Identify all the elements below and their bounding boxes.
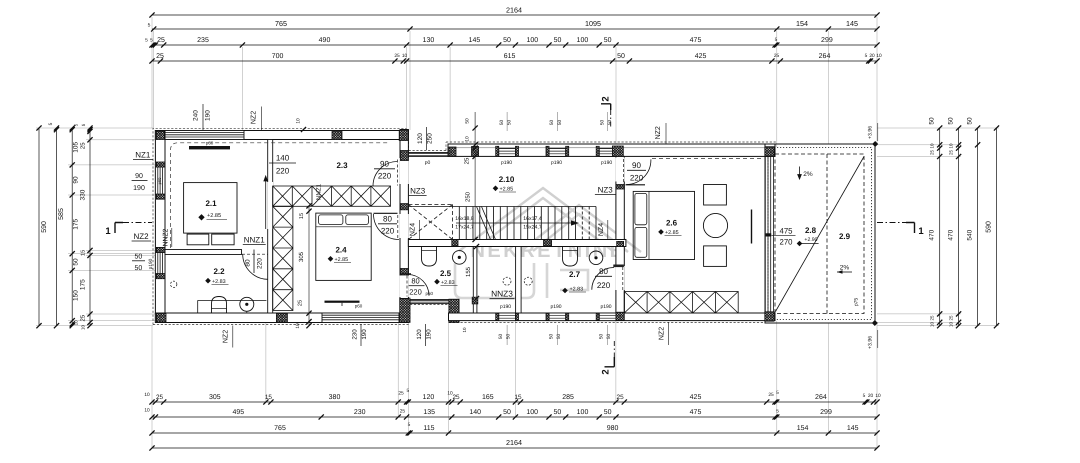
svg-text:p60: p60 (355, 304, 363, 309)
svg-text:50: 50 (604, 37, 612, 44)
svg-text:175: 175 (80, 279, 87, 290)
svg-text:50: 50 (607, 120, 613, 126)
svg-text:10: 10 (949, 143, 954, 149)
svg-text:425: 425 (690, 394, 702, 401)
svg-text:+3.96: +3.96 (868, 126, 874, 139)
svg-text:50: 50 (929, 117, 936, 125)
svg-text:299: 299 (821, 37, 833, 44)
svg-text:2.1: 2.1 (205, 199, 217, 208)
svg-text:NNZ1: NNZ1 (244, 235, 265, 244)
svg-text:220: 220 (597, 281, 611, 290)
svg-text:+2.85: +2.85 (665, 230, 679, 236)
svg-text:25: 25 (949, 315, 954, 321)
svg-text:10: 10 (949, 322, 954, 328)
svg-text:230: 230 (354, 409, 366, 416)
svg-text:90: 90 (135, 173, 143, 180)
svg-text:25: 25 (949, 150, 954, 156)
svg-text:25: 25 (298, 300, 304, 306)
svg-text:50: 50 (556, 334, 562, 340)
svg-text:475: 475 (779, 227, 793, 236)
svg-text:25: 25 (398, 391, 404, 397)
svg-text:250: 250 (427, 133, 434, 144)
svg-text:10: 10 (447, 391, 453, 397)
svg-text:50: 50 (73, 258, 80, 266)
svg-text:50: 50 (499, 120, 505, 126)
svg-text:2.8: 2.8 (805, 226, 817, 235)
svg-text:135: 135 (423, 409, 435, 416)
svg-text:50: 50 (599, 334, 605, 340)
svg-text:2.5: 2.5 (440, 269, 452, 278)
svg-text:165: 165 (482, 394, 494, 401)
svg-text:25: 25 (394, 53, 400, 59)
svg-text:NZ2: NZ2 (133, 232, 149, 241)
svg-text:140: 140 (469, 409, 481, 416)
svg-text:NZ3: NZ3 (410, 186, 426, 195)
svg-text:25: 25 (930, 150, 935, 156)
svg-text:615: 615 (504, 53, 516, 60)
svg-text:25: 25 (617, 394, 625, 401)
svg-text:5: 5 (406, 388, 409, 394)
svg-text:90: 90 (380, 160, 389, 169)
svg-text:220: 220 (630, 174, 644, 183)
svg-text:100: 100 (526, 37, 538, 44)
svg-text:120: 120 (416, 329, 423, 340)
svg-text:80: 80 (411, 277, 419, 286)
svg-text:190: 190 (133, 185, 145, 192)
svg-text:20: 20 (868, 393, 874, 399)
svg-text:10: 10 (144, 392, 150, 398)
svg-text:p190: p190 (148, 258, 154, 269)
svg-text:50: 50 (554, 409, 562, 416)
svg-text:25: 25 (156, 394, 164, 401)
svg-text:585: 585 (58, 208, 65, 220)
svg-text:25: 25 (156, 53, 164, 60)
svg-text:50: 50 (604, 409, 612, 416)
svg-text:50: 50 (503, 37, 511, 44)
svg-text:NNZ1: NNZ1 (316, 183, 323, 200)
svg-text:10: 10 (876, 53, 882, 59)
svg-text:25: 25 (930, 315, 935, 321)
svg-text:25: 25 (774, 53, 780, 59)
svg-text:2: 2 (601, 369, 612, 374)
svg-text:p190: p190 (601, 160, 612, 166)
svg-text:765: 765 (275, 19, 287, 28)
svg-text:p190: p190 (500, 304, 511, 310)
svg-text:270: 270 (779, 238, 793, 247)
svg-text:5: 5 (48, 122, 54, 125)
svg-text:155: 155 (465, 266, 472, 277)
svg-text:NNZ3: NNZ3 (491, 288, 513, 298)
svg-text:10: 10 (296, 118, 302, 124)
svg-text:5: 5 (776, 390, 779, 396)
svg-text:p75: p75 (854, 298, 860, 307)
svg-text:10: 10 (74, 320, 79, 326)
svg-text:305: 305 (298, 251, 305, 262)
svg-text:25: 25 (80, 142, 87, 149)
svg-text:25: 25 (464, 157, 471, 164)
svg-text:2%: 2% (803, 171, 813, 178)
svg-text:p60: p60 (426, 291, 434, 296)
svg-text:305: 305 (209, 394, 221, 401)
svg-text:NZ3: NZ3 (598, 185, 614, 194)
svg-text:130: 130 (423, 37, 435, 44)
svg-text:5: 5 (776, 409, 779, 415)
svg-text:p60: p60 (157, 177, 162, 184)
svg-text:2.9: 2.9 (839, 232, 851, 241)
svg-text:590: 590 (41, 221, 48, 233)
svg-text:765: 765 (274, 425, 286, 432)
svg-text:+2.90: +2.90 (804, 237, 817, 243)
svg-text:2.2: 2.2 (213, 267, 225, 276)
svg-text:2.6: 2.6 (666, 219, 678, 228)
svg-text:105: 105 (73, 141, 80, 152)
svg-text:50: 50 (557, 120, 563, 126)
svg-text:25: 25 (768, 392, 774, 398)
svg-text:5: 5 (408, 422, 411, 428)
svg-text:15: 15 (514, 394, 522, 401)
svg-text:+2.83: +2.83 (570, 287, 584, 293)
svg-text:50: 50 (967, 117, 974, 125)
svg-text:115: 115 (423, 425, 434, 432)
svg-text:470: 470 (948, 229, 955, 240)
svg-text:NZ4: NZ4 (410, 223, 417, 236)
svg-text:p190: p190 (600, 304, 611, 310)
svg-text:250: 250 (465, 191, 472, 202)
svg-text:2.3: 2.3 (336, 161, 348, 170)
svg-text:5: 5 (775, 37, 778, 43)
svg-text:264: 264 (819, 53, 831, 60)
svg-text:145: 145 (846, 19, 858, 28)
svg-text:475: 475 (690, 409, 702, 416)
svg-text:150: 150 (73, 290, 80, 301)
svg-text:17x24,7: 17x24,7 (455, 225, 474, 231)
svg-text:220: 220 (276, 167, 290, 176)
svg-text:10: 10 (81, 325, 86, 331)
svg-text:15x24,7: 15x24,7 (523, 225, 542, 231)
svg-text:p190: p190 (550, 304, 561, 310)
svg-text:+3.96: +3.96 (868, 336, 874, 349)
svg-text:264: 264 (815, 394, 827, 401)
svg-text:+2.83: +2.83 (441, 280, 455, 286)
svg-text:90: 90 (632, 161, 641, 170)
svg-text:220: 220 (378, 172, 392, 181)
svg-text:700: 700 (272, 53, 284, 60)
svg-text:154: 154 (797, 425, 809, 432)
svg-text:425: 425 (695, 53, 707, 60)
svg-text:NZ4: NZ4 (598, 223, 605, 236)
svg-text:230: 230 (352, 329, 359, 340)
svg-text:50: 50 (554, 37, 562, 44)
svg-text:299: 299 (820, 409, 832, 416)
svg-text:10: 10 (402, 53, 408, 59)
svg-text:220: 220 (409, 288, 422, 297)
svg-text:50: 50 (135, 253, 143, 260)
svg-text:190: 190 (361, 329, 368, 340)
svg-text:980: 980 (607, 425, 619, 432)
svg-text:80: 80 (245, 259, 252, 267)
svg-text:380: 380 (329, 394, 341, 401)
svg-text:+2.85: +2.85 (335, 257, 349, 263)
svg-text:490: 490 (319, 37, 331, 44)
svg-text:25: 25 (157, 37, 165, 44)
svg-text:15: 15 (299, 213, 305, 219)
svg-text:10: 10 (295, 323, 301, 329)
svg-text:154: 154 (796, 19, 808, 28)
svg-text:+2.85: +2.85 (207, 213, 221, 219)
svg-text:50: 50 (948, 117, 955, 125)
svg-text:2164: 2164 (506, 6, 522, 15)
svg-text:p0: p0 (425, 160, 431, 166)
svg-text:100: 100 (577, 37, 589, 44)
svg-text:145: 145 (847, 425, 859, 432)
svg-text:p190: p190 (501, 160, 512, 166)
svg-text:80: 80 (599, 267, 608, 276)
svg-text:100: 100 (577, 409, 589, 416)
svg-text:5: 5 (150, 38, 153, 44)
svg-text:175: 175 (73, 218, 80, 229)
svg-text:190: 190 (205, 110, 212, 121)
svg-text:50: 50 (617, 53, 625, 60)
svg-text:220: 220 (257, 258, 264, 269)
svg-text:2: 2 (601, 96, 612, 101)
svg-text:NZ2: NZ2 (251, 111, 258, 124)
svg-text:10: 10 (144, 408, 150, 414)
svg-text:50: 50 (503, 409, 511, 416)
svg-text:475: 475 (690, 37, 702, 44)
svg-text:330: 330 (80, 189, 87, 200)
svg-text:50: 50 (549, 120, 555, 126)
svg-text:2164: 2164 (506, 438, 522, 447)
svg-text:2.7: 2.7 (569, 270, 581, 279)
svg-text:5: 5 (145, 38, 148, 44)
svg-text:10: 10 (930, 322, 935, 328)
svg-text:240: 240 (193, 110, 200, 121)
svg-text:15: 15 (81, 250, 87, 256)
svg-text:50: 50 (549, 334, 555, 340)
svg-text:50: 50 (507, 120, 513, 126)
svg-text:25: 25 (80, 314, 87, 321)
svg-text:495: 495 (232, 409, 244, 416)
svg-text:NZ2: NZ2 (223, 330, 230, 343)
svg-text:100: 100 (526, 409, 538, 416)
svg-text:1: 1 (918, 226, 924, 237)
svg-text:5: 5 (863, 393, 866, 399)
svg-text:20: 20 (869, 53, 875, 59)
svg-text:NZ1: NZ1 (135, 151, 151, 160)
svg-text:80: 80 (383, 215, 392, 224)
svg-text:90: 90 (73, 176, 80, 184)
svg-text:NZ2: NZ2 (658, 327, 665, 340)
svg-text:50: 50 (498, 334, 504, 340)
svg-text:2%: 2% (840, 265, 850, 272)
svg-text:50: 50 (465, 118, 471, 124)
svg-text:540: 540 (967, 229, 974, 240)
svg-text:NNZ2: NNZ2 (163, 228, 170, 246)
svg-text:5: 5 (865, 53, 868, 59)
svg-text:+2.85: +2.85 (500, 187, 514, 193)
svg-text:1095: 1095 (585, 19, 601, 28)
svg-text:16x17,4: 16x17,4 (523, 216, 542, 222)
svg-text:50: 50 (599, 120, 605, 126)
svg-text:2.10: 2.10 (499, 175, 515, 184)
svg-text:1: 1 (105, 226, 111, 237)
svg-text:50: 50 (135, 265, 143, 272)
svg-text:25: 25 (400, 409, 406, 415)
svg-text:190: 190 (426, 329, 433, 340)
svg-text:10: 10 (875, 393, 881, 399)
svg-text:25: 25 (452, 394, 460, 401)
svg-text:50: 50 (606, 334, 612, 340)
svg-text:NZ2: NZ2 (655, 126, 662, 139)
svg-text:220: 220 (381, 227, 395, 236)
svg-text:590: 590 (986, 221, 993, 233)
svg-text:10: 10 (462, 327, 467, 333)
svg-text:p190: p190 (551, 160, 562, 166)
svg-text:50: 50 (506, 334, 512, 340)
svg-text:120: 120 (417, 133, 424, 144)
svg-text:140: 140 (276, 154, 290, 163)
svg-text:10: 10 (930, 143, 935, 149)
svg-text:16x18,8: 16x18,8 (455, 216, 474, 222)
svg-text:5: 5 (148, 23, 151, 29)
svg-text:470: 470 (929, 229, 936, 240)
svg-text:10: 10 (465, 136, 471, 142)
svg-text:285: 285 (562, 394, 574, 401)
svg-text:235: 235 (197, 37, 209, 44)
svg-text:2.4: 2.4 (335, 246, 347, 255)
svg-text:+2.83: +2.83 (212, 279, 226, 285)
svg-text:120: 120 (423, 394, 435, 401)
svg-text:15: 15 (265, 394, 273, 401)
svg-text:145: 145 (469, 37, 481, 44)
